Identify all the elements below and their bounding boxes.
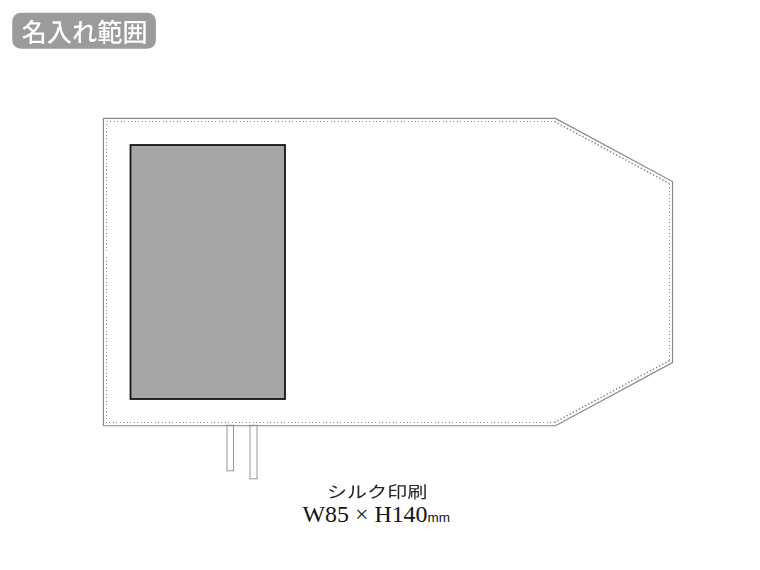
svg-text:W85 × H140mm: W85 × H140mm: [303, 501, 450, 527]
